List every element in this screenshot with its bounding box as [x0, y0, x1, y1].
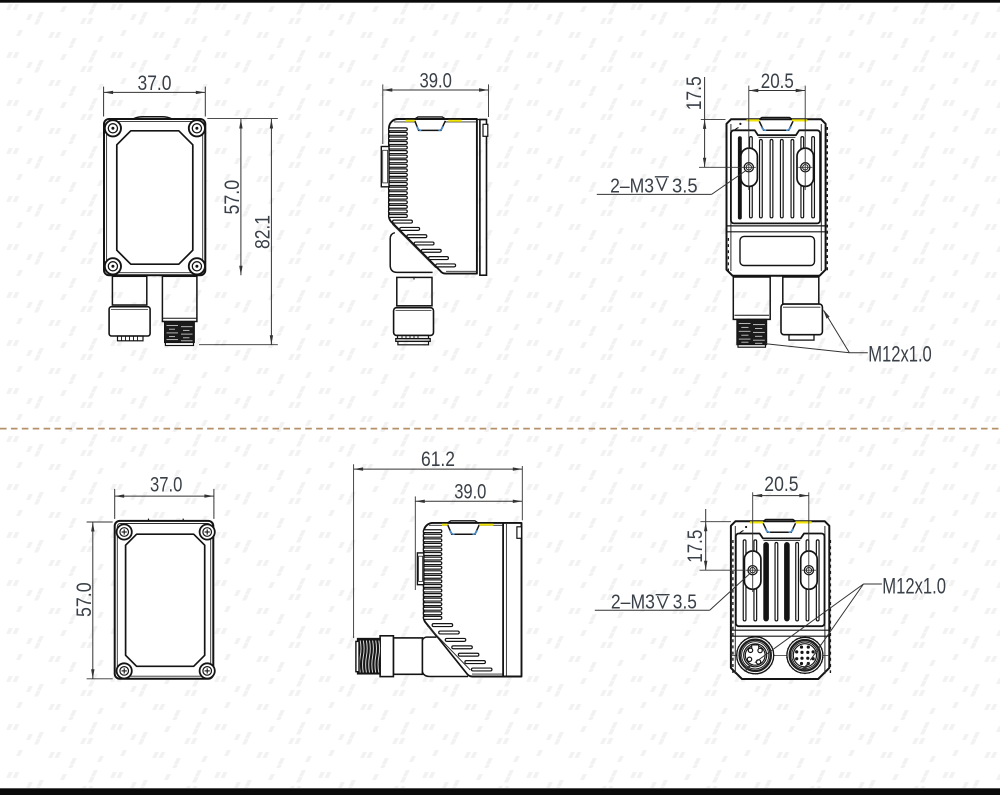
- svg-text:M12x1.0: M12x1.0: [882, 574, 946, 599]
- svg-text:20.5: 20.5: [764, 473, 798, 496]
- svg-text:3.5: 3.5: [672, 175, 698, 198]
- svg-text:2–M3: 2–M3: [610, 175, 654, 198]
- svg-text:17.5: 17.5: [684, 530, 707, 563]
- svg-text:57.0: 57.0: [221, 180, 244, 215]
- svg-text:37.0: 37.0: [150, 474, 182, 497]
- svg-text:57.0: 57.0: [73, 582, 96, 617]
- svg-text:37.0: 37.0: [138, 72, 172, 95]
- svg-text:20.5: 20.5: [761, 70, 794, 93]
- svg-text:M12x1.0: M12x1.0: [868, 342, 932, 367]
- svg-text:82.1: 82.1: [252, 215, 275, 249]
- svg-text:39.0: 39.0: [454, 481, 486, 504]
- svg-text:2–M3: 2–M3: [611, 590, 655, 613]
- svg-text:39.0: 39.0: [420, 69, 452, 92]
- svg-text:61.2: 61.2: [421, 448, 455, 471]
- svg-text:3.5: 3.5: [673, 590, 697, 613]
- svg-text:17.5: 17.5: [683, 76, 706, 110]
